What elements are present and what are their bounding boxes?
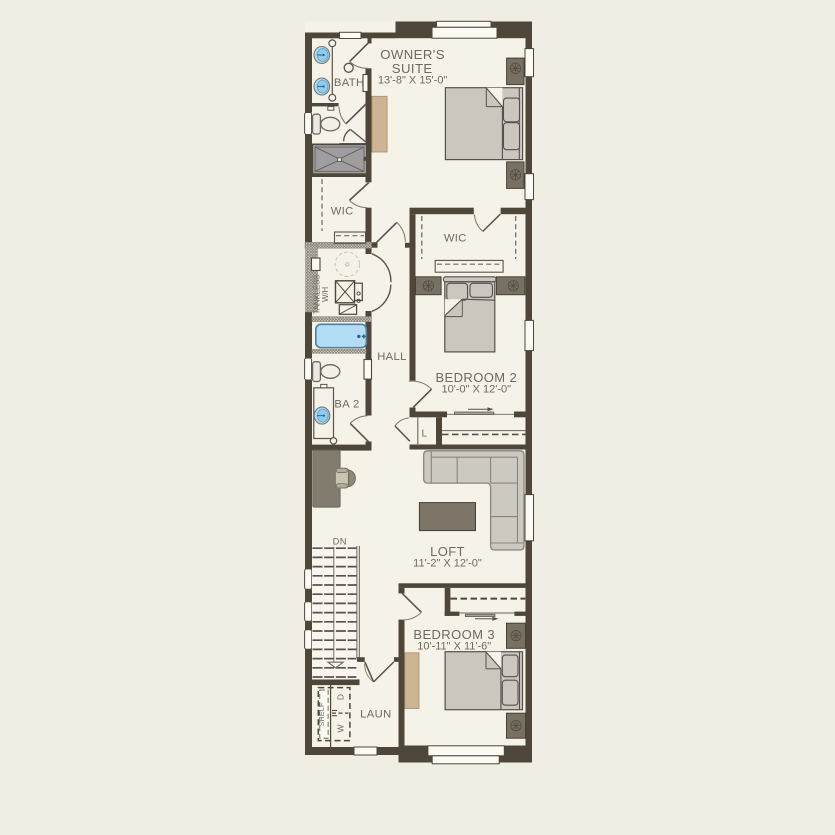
svg-text:BATH: BATH bbox=[334, 77, 365, 89]
svg-text:OWNER'S: OWNER'S bbox=[380, 47, 445, 62]
svg-text:11'-2" X 12'-0": 11'-2" X 12'-0" bbox=[413, 558, 482, 570]
svg-text:WIC: WIC bbox=[444, 233, 467, 245]
svg-text:10'-11" X 11'-6": 10'-11" X 11'-6" bbox=[417, 641, 491, 653]
svg-text:HALL: HALL bbox=[377, 351, 407, 363]
svg-text:WIC: WIC bbox=[331, 206, 354, 218]
svg-text:L: L bbox=[422, 429, 428, 440]
svg-text:DN: DN bbox=[333, 536, 347, 546]
svg-text:10'-0" X 12'-0": 10'-0" X 12'-0" bbox=[442, 384, 512, 396]
svg-text:13'-8" X 15'-0": 13'-8" X 15'-0" bbox=[378, 75, 448, 87]
svg-text:W/H: W/H bbox=[321, 287, 330, 302]
svg-text:BA 2: BA 2 bbox=[334, 399, 359, 411]
svg-text:SUITE: SUITE bbox=[392, 61, 433, 76]
svg-text:W: W bbox=[336, 724, 346, 732]
svg-text:LAUN: LAUN bbox=[360, 709, 391, 721]
svg-text:D: D bbox=[336, 694, 346, 700]
svg-text:SHELF: SHELF bbox=[319, 702, 326, 726]
